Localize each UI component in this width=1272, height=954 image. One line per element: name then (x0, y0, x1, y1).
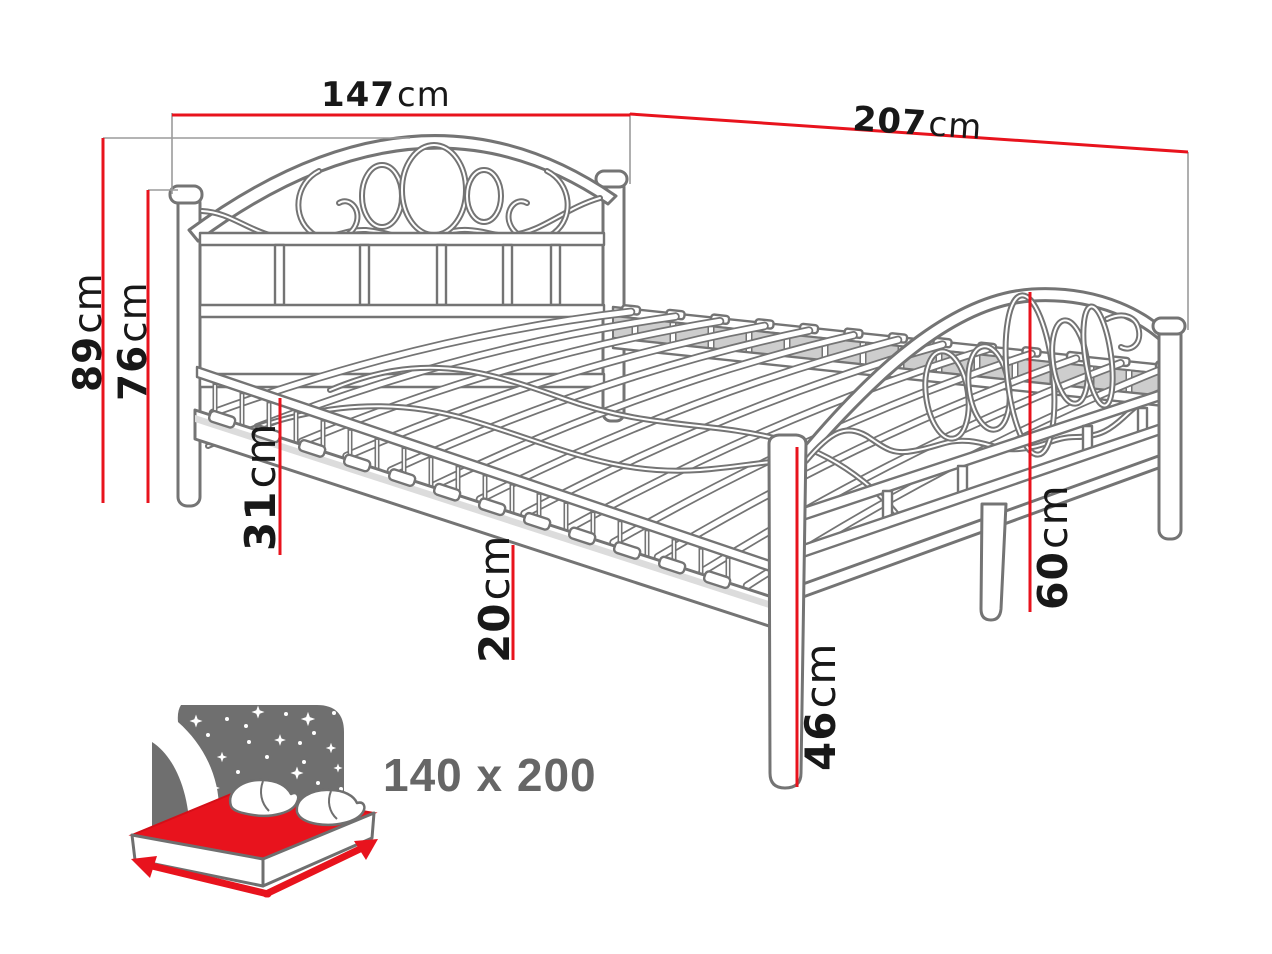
footboard-far-post-cap (1153, 318, 1185, 334)
dim-label-147: 147cm (321, 75, 451, 115)
dim-label-60: 60cm (1029, 484, 1077, 610)
headboard-left-post-cap (170, 186, 202, 203)
dim-label-46: 46cm (796, 643, 845, 771)
bed-technical-diagram: 140 x 200 147cm 207cm 89cm 76cm 31cm 20c… (0, 0, 1272, 954)
dim-label-20: 20cm (470, 535, 519, 663)
size-label: 140 x 200 (383, 749, 597, 801)
footboard-far-post (1159, 326, 1181, 539)
headboard-upper-rail (200, 233, 604, 245)
diagram-svg: 140 x 200 147cm 207cm 89cm 76cm 31cm 20c… (0, 0, 1272, 954)
bed-size-icon: 140 x 200 (131, 705, 597, 894)
headboard-middle-rail (200, 305, 604, 317)
dim-label-89: 89cm (66, 272, 111, 392)
dim-label-207: 207cm (851, 99, 983, 148)
footboard-middle-leg (981, 504, 1006, 620)
dim-label-31: 31cm (236, 423, 285, 551)
dim-label-76: 76cm (111, 281, 156, 401)
